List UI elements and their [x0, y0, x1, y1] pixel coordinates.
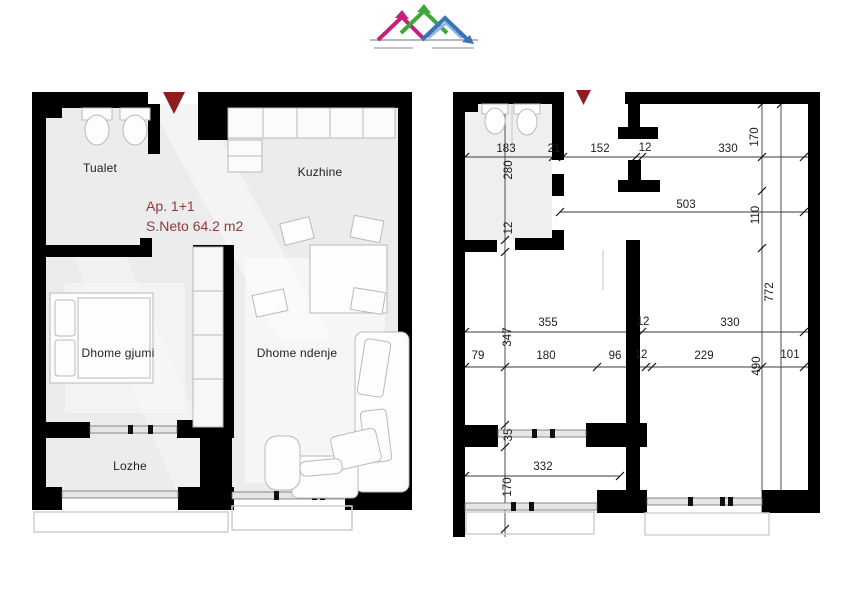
entrance-marker-icon	[576, 90, 591, 105]
left-floor-plan	[30, 88, 415, 536]
floor-fill	[465, 104, 552, 240]
right-floor-plan	[448, 88, 826, 548]
logo-roof-pink-arrow-icon	[395, 10, 409, 19]
wardrobe-icon	[193, 247, 223, 427]
floor-plan-sheet: Tualet Kuzhine Dhome gjumi Dhome ndenje …	[0, 0, 851, 595]
logo-roof-pink-icon	[378, 17, 424, 40]
roofline-logo	[368, 4, 480, 54]
bed-icon	[50, 293, 153, 383]
logo-roof-green-arrow-icon	[417, 4, 431, 13]
balcony-outline	[466, 512, 769, 535]
